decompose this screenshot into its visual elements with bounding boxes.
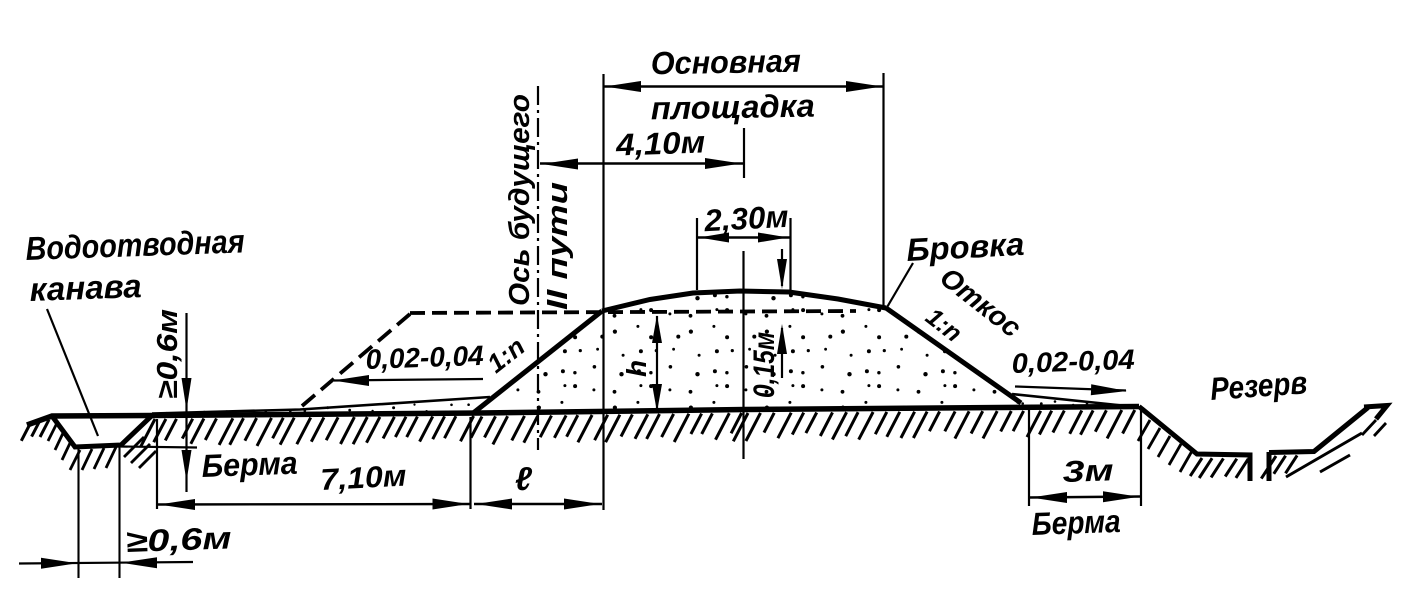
svg-text:Основная: Основная: [651, 43, 802, 82]
svg-text:площадка: площадка: [651, 88, 816, 127]
svg-text:канава: канава: [29, 267, 142, 308]
svg-text:0,15м: 0,15м: [748, 332, 781, 398]
svg-text:II пути: II пути: [542, 182, 574, 310]
svg-text:≥0,6м: ≥0,6м: [152, 309, 184, 399]
svg-text:3м: 3м: [1062, 454, 1114, 489]
svg-text:≥0,6м: ≥0,6м: [125, 520, 232, 559]
svg-text:Бровка: Бровка: [905, 226, 1025, 268]
svg-text:0,02-0,04: 0,02-0,04: [365, 340, 484, 375]
svg-text:Резерв: Резерв: [1209, 364, 1308, 407]
svg-text:h: h: [621, 360, 652, 377]
svg-text:2,30м: 2,30м: [703, 199, 790, 238]
svg-text:Водоотводная: Водоотводная: [25, 222, 245, 267]
svg-text:Берма: Берма: [1031, 503, 1121, 542]
svg-text:Ось будущего: Ось будущего: [504, 94, 536, 306]
svg-text:Берма: Берма: [201, 445, 298, 484]
svg-text:0,02-0,04: 0,02-0,04: [1011, 344, 1135, 379]
svg-text:7,10м: 7,10м: [320, 460, 408, 497]
svg-text:4,10м: 4,10м: [614, 124, 705, 162]
svg-text:ℓ: ℓ: [515, 460, 533, 497]
